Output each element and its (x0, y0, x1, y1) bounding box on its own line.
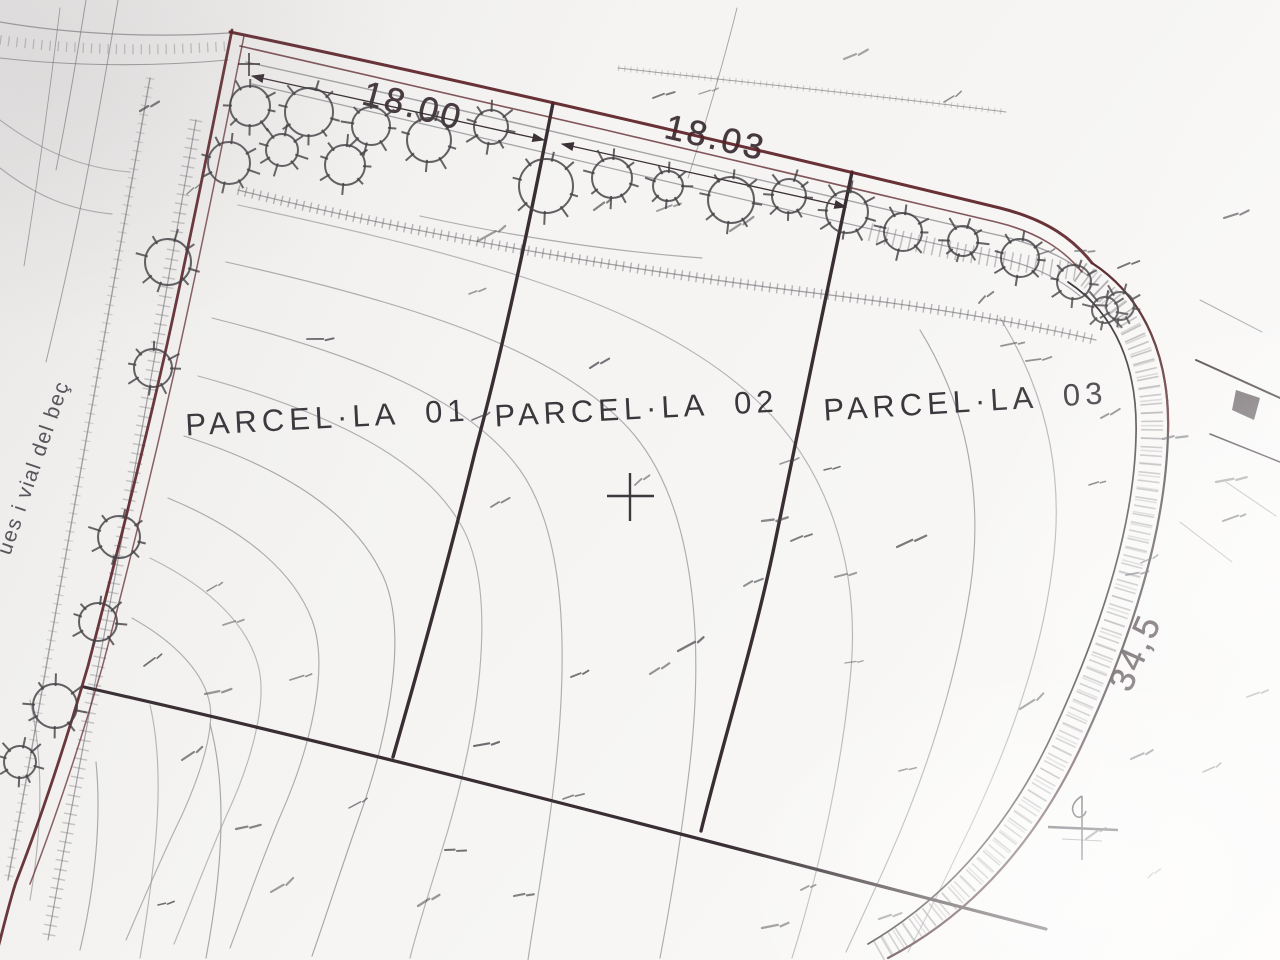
tree-icon (874, 205, 929, 261)
elevation-annotation-mark (1018, 693, 1045, 709)
tree-canopy-circle (285, 88, 333, 136)
road-edge-line (1200, 300, 1262, 332)
survey-cross-marker (607, 473, 654, 521)
road-edge-line (1226, 482, 1276, 516)
street-name-label: ues i vial del beç (0, 378, 74, 558)
dimension-label-34-5: 34,5 (1101, 608, 1169, 697)
elevation-annotation-mark (634, 475, 651, 485)
elevation-annotation-mark (490, 498, 511, 507)
tree-icon (513, 152, 578, 225)
elevation-annotation-mark (1223, 514, 1246, 521)
elevation-annotation-mark (1130, 750, 1153, 759)
elevation-annotation-mark (824, 467, 840, 470)
contour-line (140, 705, 158, 958)
elevation-annotation-mark (1224, 210, 1250, 218)
tree-branch-tick (994, 267, 1005, 274)
tree-branch-tick (561, 206, 569, 217)
cadastral-boundary-line (230, 32, 1092, 263)
tree-branch-tick (829, 185, 837, 197)
elevation-annotation-mark (1163, 435, 1187, 440)
elevation-annotation-mark (744, 579, 764, 586)
tree-branch-tick (905, 205, 906, 216)
elevation-annotation-mark (570, 671, 589, 677)
elevation-annotation-mark (943, 91, 963, 102)
elevation-annotation-mark (780, 458, 800, 464)
contour-line (80, 762, 98, 950)
maroon-boundaries-group (0, 30, 1168, 958)
right-edge-parcel-mark (1232, 390, 1260, 420)
retaining-wall-hatch (0, 40, 229, 49)
elevation-annotation-mark (269, 878, 294, 892)
tree-branch-tick (388, 128, 396, 129)
elevation-annotation-mark (677, 637, 705, 651)
elevation-annotation-mark (653, 92, 676, 98)
tree-branch-tick (100, 596, 101, 605)
elevation-annotation-mark (896, 536, 927, 547)
tree-branch-tick (1037, 260, 1046, 261)
cadastral-boundary-line (30, 36, 244, 884)
contour-line (206, 724, 221, 958)
elevation-annotation-mark (649, 663, 671, 674)
tree-icon (128, 341, 181, 396)
tree-branch-tick (770, 206, 778, 214)
elevation-annotation-mark (593, 199, 612, 210)
tree-branch-tick (1090, 318, 1097, 325)
tree-canopy-circle (474, 110, 508, 144)
elevation-annotation-mark (699, 88, 719, 94)
contour-line (420, 216, 702, 258)
plot-boundary-line (1210, 434, 1280, 462)
tree-branch-tick (3, 743, 11, 752)
elevation-annotation-mark (514, 893, 534, 897)
contour-line (126, 618, 211, 940)
elevation-annotation-mark (1216, 477, 1247, 482)
elevation-annotation-mark (445, 849, 466, 852)
elevation-annotation-mark (843, 50, 869, 59)
elevation-annotation-mark (290, 674, 312, 680)
tree-branch-tick (613, 148, 614, 160)
tree-icon (938, 218, 989, 262)
tree-branch-tick (22, 704, 35, 705)
road-edges-group (0, 0, 1276, 940)
tree-canopy-circle (208, 142, 250, 184)
elevation-annotation-mark (180, 747, 204, 760)
tree-branch-tick (231, 133, 232, 144)
tree-branch-tick (820, 222, 831, 229)
tree-branch-tick (291, 161, 298, 170)
elevation-annotation-mark (589, 359, 610, 368)
hatch-bands-group (0, 40, 1152, 951)
road-edge-line (1180, 522, 1232, 562)
tree-branch-tick (182, 278, 189, 285)
tree-branch-tick (843, 231, 844, 240)
parcel-01-label: PARCEL·LA 01 (185, 393, 471, 443)
tree-branch-tick (518, 203, 527, 211)
tree-branch-tick (1052, 290, 1062, 297)
tree-branch-tick (652, 195, 659, 202)
tree-branch-tick (804, 197, 813, 198)
annotation-squiggles-group (139, 50, 1268, 929)
elevation-annotation-mark (657, 203, 682, 211)
elevation-annotation-mark (977, 292, 995, 303)
tree-icon (259, 124, 308, 176)
elevation-annotation-mark (845, 661, 863, 663)
tree-branch-tick (426, 160, 427, 172)
tree-branch-tick (856, 229, 862, 241)
elevation-annotation-mark (835, 572, 856, 577)
tree-branch-tick (669, 162, 670, 173)
contour-lines-group (0, 120, 1056, 960)
road-edge-line (618, 68, 1006, 112)
elevation-annotation-mark (1202, 763, 1222, 772)
tree-branch-tick (406, 153, 414, 160)
contour-line (0, 168, 112, 214)
elevation-annotation-mark (1246, 690, 1268, 697)
dimension-label-18-03: 18.03 (661, 107, 770, 168)
tree-branch-tick (597, 150, 603, 162)
plot-boundary-line (701, 172, 852, 831)
elevation-annotation-mark (307, 336, 334, 340)
retaining-wall-hatch (238, 190, 1096, 340)
elevation-annotation-mark (1089, 481, 1106, 485)
elevation-annotation-mark (205, 689, 232, 694)
tree-branch-tick (128, 377, 138, 384)
road-edge-line (0, 58, 228, 65)
elevation-annotation-mark (469, 288, 486, 294)
tree-branch-tick (1084, 293, 1091, 301)
tree-branch-tick (818, 210, 828, 211)
tree-branch-tick (380, 140, 386, 150)
trees-group (0, 79, 1140, 787)
cadastral-boundary-line (888, 736, 1086, 958)
elevation-annotation-mark (1001, 342, 1024, 346)
elevation-annotation-mark (762, 517, 788, 521)
elevation-annotation-mark (1026, 357, 1052, 361)
tree-branch-tick (1107, 290, 1108, 299)
parcel-03-label: PARCEL·LA 03 (822, 375, 1108, 427)
tree-branch-tick (544, 211, 545, 225)
tree-branch-tick (294, 136, 303, 142)
tree-icon (22, 673, 87, 738)
tree-canopy-circle (519, 159, 573, 213)
elevation-annotation-mark (206, 582, 223, 591)
tree-branch-tick (1050, 278, 1059, 279)
tree-branch-tick (611, 196, 612, 209)
site-plan-scan: 18.00 18.03 34,5 ues i vial del beç PARC… (0, 0, 1280, 960)
tree-canopy-circle (948, 226, 978, 256)
elevation-annotation-mark (471, 412, 490, 420)
elevation-annotation-mark (899, 768, 917, 771)
tree-branch-tick (363, 166, 371, 167)
elevation-annotation-mark (417, 895, 441, 906)
tree-branch-tick (439, 157, 446, 169)
elevation-annotation-mark (879, 912, 901, 919)
tree-canopy-circle (592, 158, 632, 198)
elevation-annotation-mark (563, 794, 585, 799)
tree-branch-tick (115, 624, 127, 625)
benchmark-marker (1048, 796, 1118, 860)
elevation-annotation-mark (790, 534, 812, 541)
elevation-annotation-mark (223, 620, 244, 625)
elevation-annotation-mark (1075, 250, 1095, 253)
road-edge-line (0, 22, 229, 35)
elevation-annotation-mark (474, 742, 499, 747)
retaining-wall-hatch (878, 272, 1152, 951)
elevation-annotation-mark (142, 654, 163, 666)
tree-canopy-circle (266, 134, 298, 166)
tree-branch-tick (19, 776, 20, 787)
contour-line (198, 376, 482, 958)
tree-branch-tick (706, 213, 715, 220)
benchmark-hook (1073, 796, 1086, 817)
elevation-annotation-mark (158, 901, 174, 905)
tree-branch-tick (678, 171, 686, 178)
road-edge-line (46, 0, 118, 362)
site-plan-drawing: 18.00 18.03 34,5 ues i vial del beç PARC… (0, 0, 1280, 960)
tree-icon (645, 162, 693, 209)
benchmark-bar (1048, 827, 1118, 830)
tree-branch-tick (565, 162, 574, 170)
elevation-annotation-mark (1147, 869, 1162, 878)
parcel-02-label: PARCEL·LA 02 (494, 384, 780, 434)
contour-line (184, 436, 395, 956)
tree-branch-tick (143, 275, 152, 282)
tree-branch-tick (1089, 284, 1099, 285)
retaining-wall-hatch (878, 272, 1152, 951)
contour-line (226, 262, 696, 958)
tree-branch-tick (132, 551, 139, 558)
corner-cross-mark (238, 53, 260, 76)
tree-branch-tick (267, 128, 274, 138)
plot-boundary-line (84, 687, 1046, 929)
tree-branch-tick (1072, 297, 1073, 308)
tree-branch-tick (503, 110, 513, 118)
tree-branch-tick (347, 134, 348, 147)
elevation-annotation-mark (1117, 261, 1139, 268)
tree-icon (1050, 260, 1098, 308)
tree-branch-tick (230, 119, 237, 126)
road-edge-line (56, 0, 86, 170)
dimension-label-18-00: 18.00 (358, 74, 467, 138)
elevation-annotation-mark (762, 922, 788, 928)
tree-branch-tick (733, 169, 734, 179)
plot-boundary-line (888, 263, 1168, 958)
tree-icon (1082, 290, 1128, 330)
elevation-annotation-mark (801, 885, 816, 890)
contour-line (0, 120, 130, 172)
tree-branch-tick (763, 194, 774, 195)
elevation-annotation-mark (348, 798, 368, 808)
elevation-annotation-mark (236, 825, 261, 829)
tree-branch-tick (342, 183, 343, 195)
